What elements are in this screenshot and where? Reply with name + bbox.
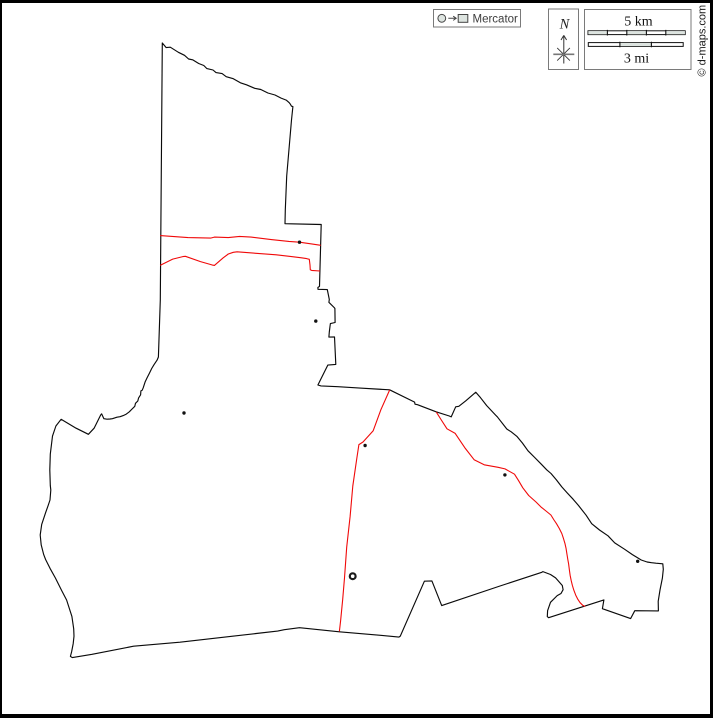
svg-text:© d-maps.com: © d-maps.com (697, 5, 709, 77)
svg-text:N: N (559, 17, 571, 33)
svg-text:3 mi: 3 mi (624, 51, 649, 66)
svg-text:5 km: 5 km (624, 15, 653, 30)
svg-text:Mercator: Mercator (473, 14, 519, 26)
